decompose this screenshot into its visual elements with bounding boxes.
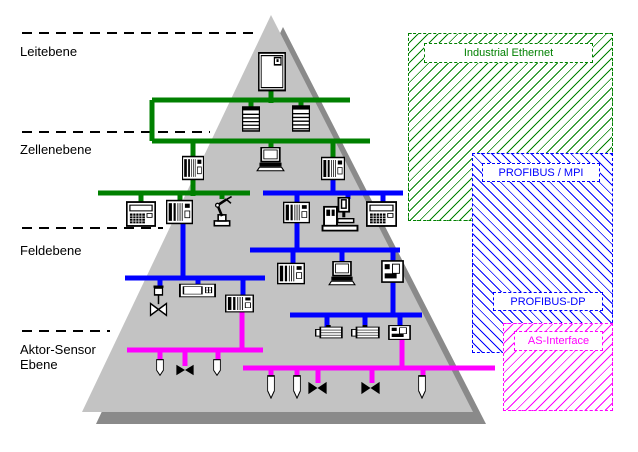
legend-text: PROFIBUS / MPI [499,167,584,179]
drive-icon [389,326,410,340]
industrial-ethernet-label: Industrial Ethernet [424,43,593,63]
motor-icon [316,325,342,338]
level-text: Ebene [20,357,58,372]
drive-icon [382,261,403,282]
level-label-zellenebene: Zellenebene [20,142,92,157]
rack-icon [293,106,310,131]
laptop-icon [257,148,284,171]
automation-pyramid-diagram: Leitebene Zellenebene Feldebene Aktor-Se… [0,0,638,452]
keypad-icon [127,202,156,226]
plc-icon [321,158,344,180]
plc-icon [284,202,310,222]
as-interface-label: AS-Interface [514,331,603,351]
laptop-icon [329,262,355,285]
level-label-aktor-sensor-ebene: Aktor-SensorEbene [20,342,96,372]
plc-icon [167,201,193,224]
profibus-mpi-label: PROFIBUS / MPI [482,163,600,182]
plc-icon [278,263,305,283]
cabinet-icon [259,53,285,91]
level-text: Zellenebene [20,142,92,157]
legend-text: PROFIBUS-DP [510,296,585,308]
plc-icon [182,157,203,180]
level-text: Leitebene [20,44,77,59]
motor-icon [352,325,379,338]
plc-icon [226,295,254,312]
rack-icon [243,107,260,131]
level-text: Feldebene [20,243,81,258]
level-label-feldebene: Feldebene [20,243,81,258]
panel-icon [180,284,216,297]
legend-text: AS-Interface [528,335,589,347]
level-label-leitebene: Leitebene [20,44,77,59]
level-text: Aktor-Sensor [20,342,96,357]
profibus-dp-label: PROFIBUS-DP [493,292,603,311]
keypad-icon [367,202,397,226]
legend-text: Industrial Ethernet [464,47,553,59]
